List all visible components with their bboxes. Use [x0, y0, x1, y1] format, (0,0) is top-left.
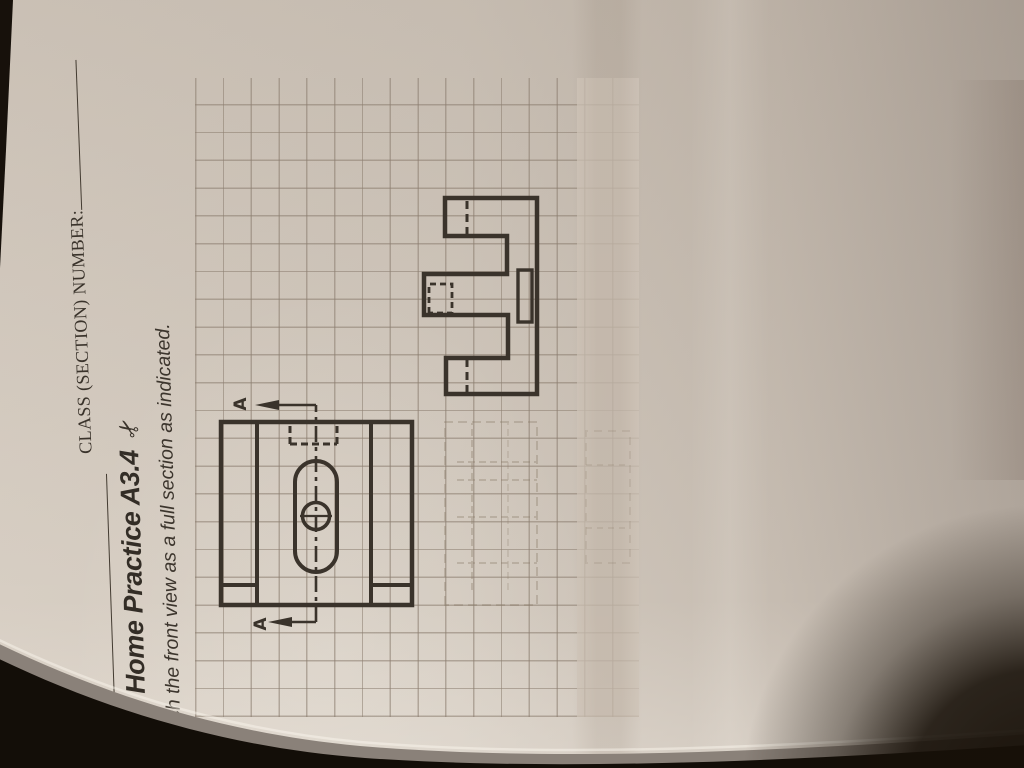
class-field-group: CLASS (SECTION) NUMBER: — [60, 60, 96, 455]
top-view-drawing — [215, 388, 420, 638]
pencil-outline — [445, 422, 537, 605]
slot-edge-rect — [518, 270, 532, 322]
section-label-right: A — [231, 395, 251, 413]
section-arrow-left — [268, 617, 292, 627]
instruction-text: Sketch the front view as a full section … — [152, 323, 187, 759]
side-view-outline — [424, 198, 537, 394]
name-label: NAME: — [99, 702, 121, 763]
pencil-vertical-lines — [457, 462, 537, 563]
name-blank-line — [92, 474, 115, 702]
class-blank-line — [61, 60, 82, 210]
pencil-sketch — [435, 408, 547, 618]
crease-shadow — [572, 0, 642, 768]
class-label: CLASS (SECTION) NUMBER: — [66, 209, 95, 454]
scissors-icon: ✂ — [112, 410, 145, 446]
paper-highlight — [690, 0, 770, 768]
photo-background: NAME: CLASS (SECTION) NUMBER: Take Home … — [0, 0, 1024, 768]
section-label-left: A — [251, 615, 271, 633]
side-view-drawing — [415, 188, 545, 403]
worksheet-page: NAME: CLASS (SECTION) NUMBER: Take Home … — [0, 0, 1024, 768]
section-arrow-right — [255, 400, 279, 410]
hidden-notch-lines — [290, 422, 337, 444]
top-view-step-edges — [257, 422, 371, 605]
hidden-hole-rect — [429, 284, 452, 313]
